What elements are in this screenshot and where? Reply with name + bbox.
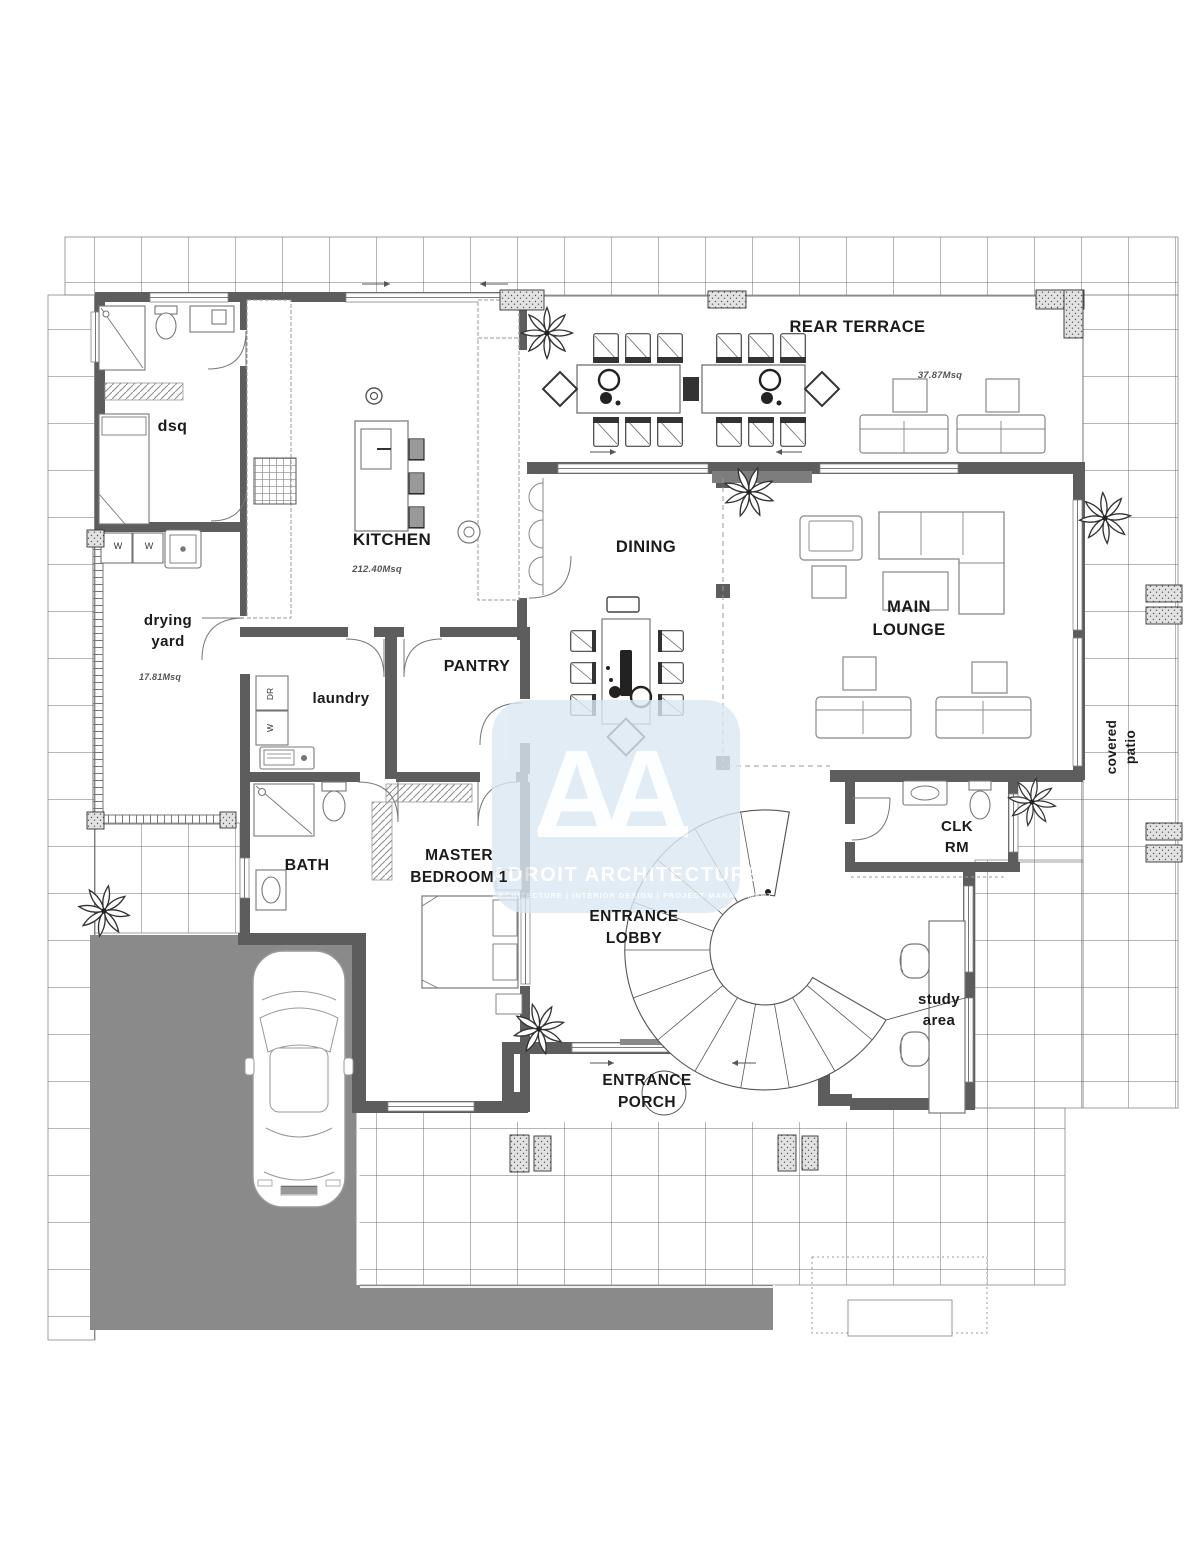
bar-stools [409,439,424,528]
room-label-master-bedroom: MASTER BEDROOM 1 [374,845,544,888]
sliding-door [712,471,812,483]
car [245,951,353,1207]
clk-fixtures [903,781,991,819]
room-label-dining: DINING [566,536,726,559]
room-label-clk-rm: CLK RM [917,816,997,858]
room-label-entrance-lobby: ENTRANCE LOBBY [554,906,714,949]
room-label-rear-terrace: REAR TERRACE [755,316,960,339]
room-label-main-lounge: MAIN LOUNGE [829,596,989,642]
dining-counter [529,478,543,595]
room-label-pantry: PANTRY [407,656,547,678]
room-label-drying-yard: drying yard [106,610,230,652]
bath-fixtures [254,782,346,910]
room-label-laundry: laundry [281,688,401,709]
room-label-study-area: study area [889,989,989,1031]
area-label-rear-terrace: 37.87Msq [895,370,985,381]
floor-plan: A A ADROIT ARCHITECTURE ARCHITECTURE | I… [0,0,1200,1553]
monogram-letter-2: A [604,726,689,858]
appliance-label-yard-washer-1: W [104,541,132,551]
watermark-tagline: ARCHITECTURE | INTERIOR DESIGN | PROJECT… [492,891,740,900]
appliance-label-washer: W [265,713,281,743]
area-label-drying-yard: 17.81Msq [100,672,220,682]
room-label-dsq: dsq [125,416,220,438]
area-label-kitchen: 212.40Msq [312,564,442,575]
room-label-kitchen: KITCHEN [312,528,472,552]
terrace-sofas [860,379,1045,453]
room-label-bath: BATH [247,855,367,877]
appliance-label-dryer: DR [265,679,281,709]
appliance-label-yard-washer-2: W [135,541,163,551]
terrace-dining-set [543,334,839,447]
room-label-entrance-porch: ENTRANCE PORCH [567,1070,727,1113]
dsq-furniture [99,306,234,524]
room-label-covered-patio: covered patio [1103,705,1167,789]
